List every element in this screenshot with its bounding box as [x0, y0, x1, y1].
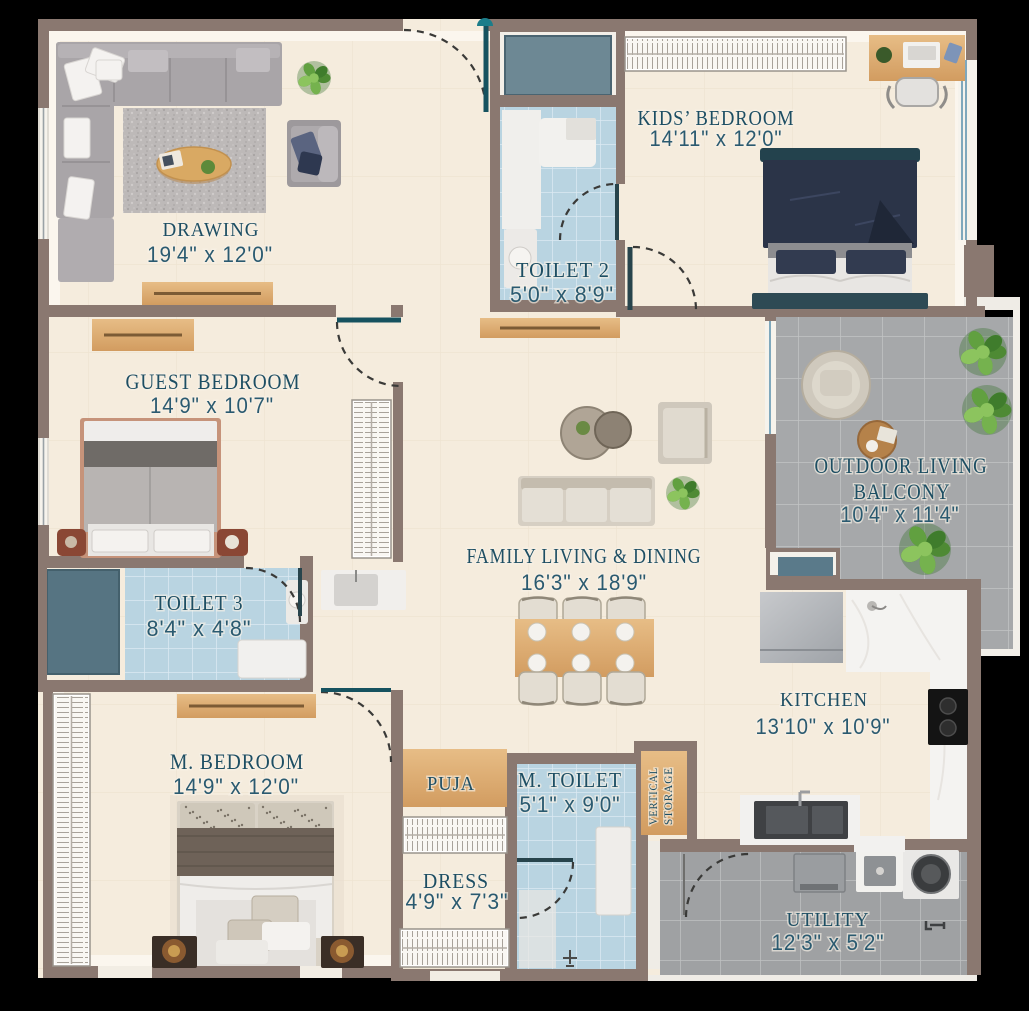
svg-text:12'3" x 5'2": 12'3" x 5'2" — [772, 930, 885, 955]
svg-text:5'1" x 9'0": 5'1" x 9'0" — [520, 792, 621, 817]
svg-text:GUEST BEDROOM: GUEST BEDROOM — [126, 369, 301, 394]
svg-text:M. BEDROOM: M. BEDROOM — [170, 749, 304, 774]
svg-text:10'4" x 11'4": 10'4" x 11'4" — [841, 502, 960, 527]
svg-text:OUTDOOR LIVING: OUTDOOR LIVING — [815, 453, 988, 478]
svg-text:DRAWING: DRAWING — [163, 219, 260, 241]
svg-text:13'10" x 10'9": 13'10" x 10'9" — [756, 714, 891, 739]
svg-text:KITCHEN: KITCHEN — [780, 689, 868, 711]
svg-text:19'4" x 12'0": 19'4" x 12'0" — [147, 242, 273, 267]
svg-text:BALCONY: BALCONY — [854, 479, 951, 504]
svg-text:TOILET 3: TOILET 3 — [155, 591, 244, 615]
svg-text:STORAGE: STORAGE — [661, 767, 675, 825]
svg-text:VERTICAL: VERTICAL — [646, 767, 660, 825]
svg-text:TOILET 2: TOILET 2 — [516, 258, 610, 282]
svg-text:4'9" x 7'3": 4'9" x 7'3" — [406, 889, 509, 914]
svg-text:UTILITY: UTILITY — [787, 909, 870, 931]
svg-text:14'9" x 12'0": 14'9" x 12'0" — [173, 774, 299, 799]
svg-text:8'4" x 4'8": 8'4" x 4'8" — [147, 616, 252, 641]
svg-text:FAMILY LIVING & DINING: FAMILY LIVING & DINING — [467, 544, 702, 568]
svg-text:5'0" x 8'9": 5'0" x 8'9" — [510, 282, 614, 307]
svg-text:14'9" x 10'7": 14'9" x 10'7" — [150, 393, 274, 418]
svg-text:PUJA: PUJA — [427, 773, 475, 795]
svg-text:14'11" x 12'0": 14'11" x 12'0" — [650, 126, 783, 151]
svg-text:M. TOILET: M. TOILET — [518, 768, 622, 792]
svg-text:16'3" x 18'9": 16'3" x 18'9" — [521, 570, 647, 595]
